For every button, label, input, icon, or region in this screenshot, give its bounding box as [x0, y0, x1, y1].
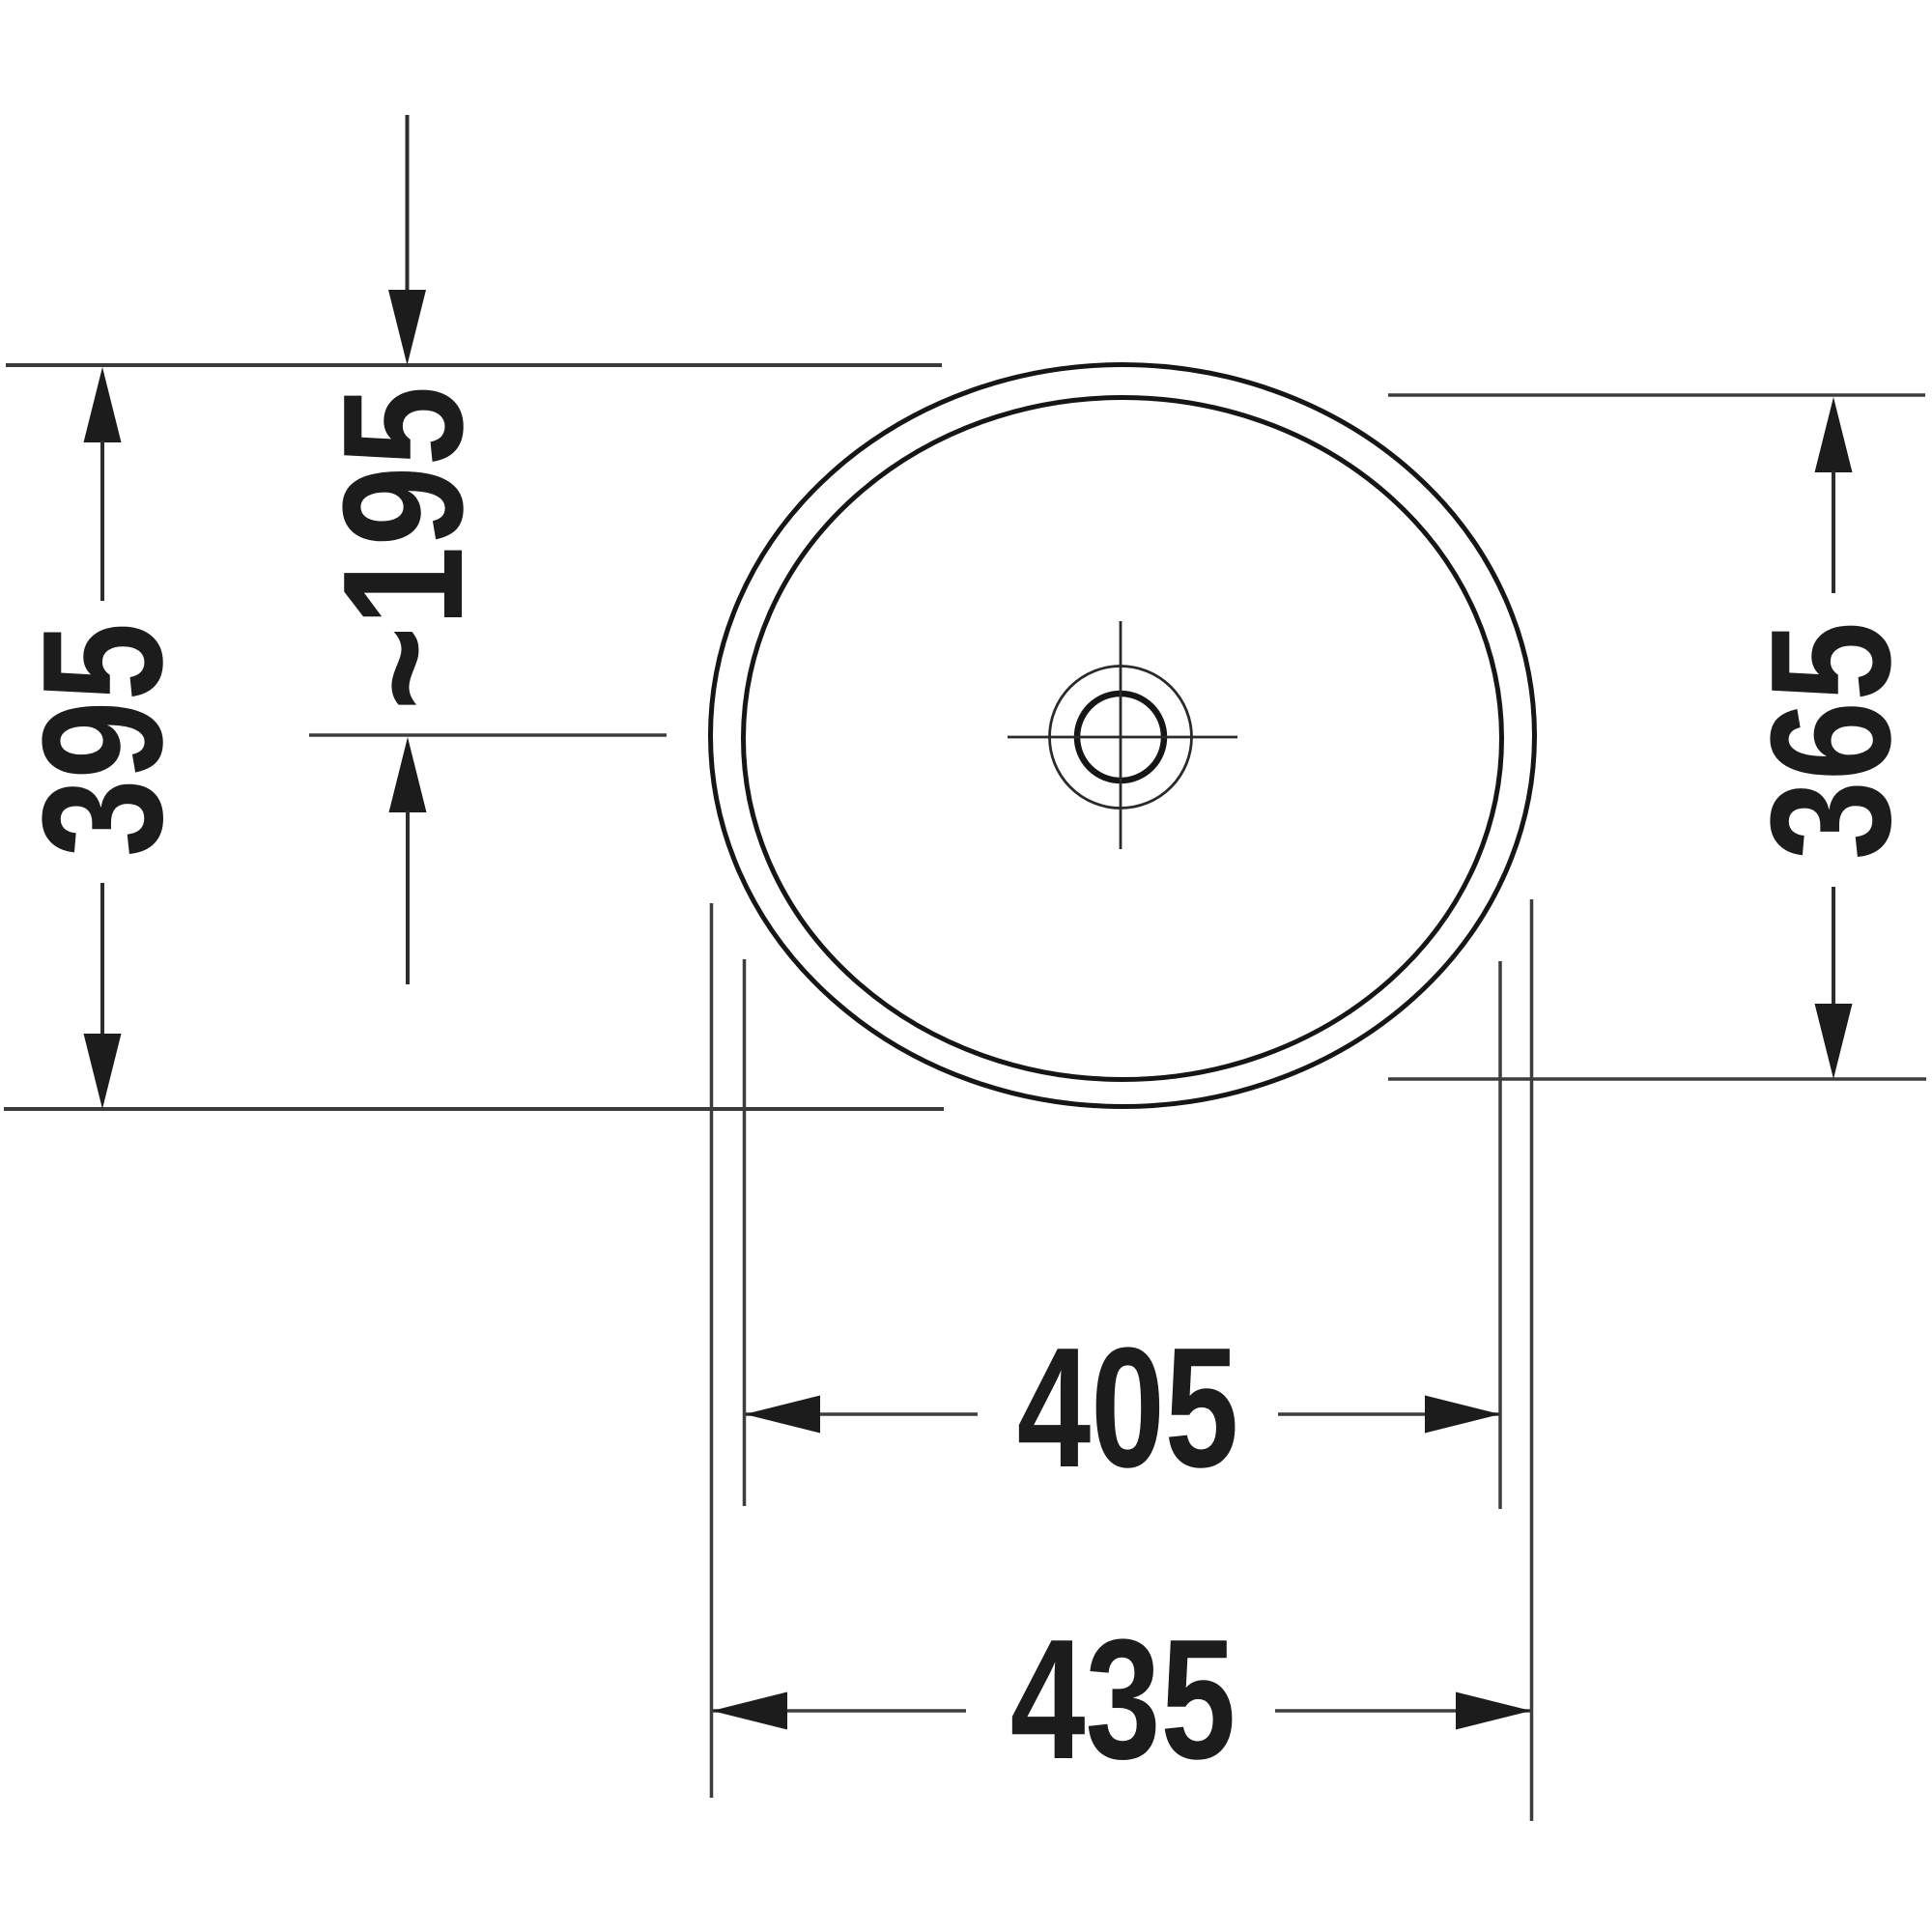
svg-text:435: 435: [1010, 1604, 1236, 1794]
svg-text:365: 365: [1734, 622, 1926, 861]
svg-text:395: 395: [7, 623, 198, 858]
svg-text:~195: ~195: [307, 385, 498, 710]
svg-text:405: 405: [1017, 1312, 1238, 1503]
